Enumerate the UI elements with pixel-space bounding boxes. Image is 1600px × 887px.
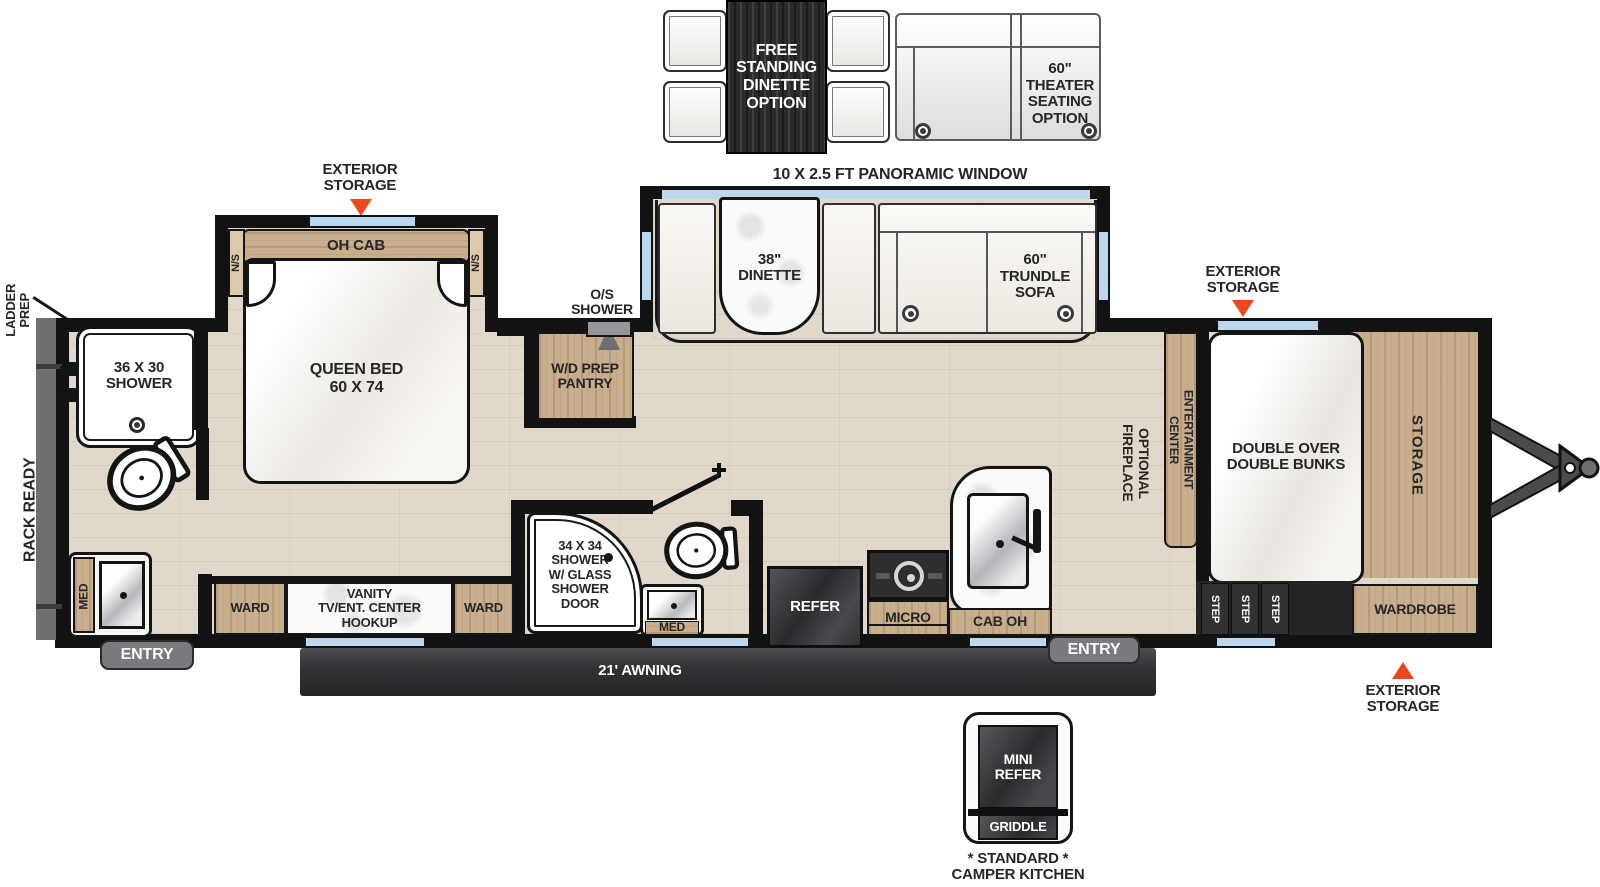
exterior-storage-label: EXTERIOR STORAGE (1338, 682, 1468, 716)
interior-wall (196, 428, 209, 500)
cab-oh-label: CAB OH (950, 610, 1050, 634)
step-label: STEP (1209, 595, 1221, 623)
camper-kitchen-caption: * STANDARD * CAMPER KITCHEN (938, 850, 1098, 884)
interior-wall (194, 318, 208, 430)
dinette-bench (822, 203, 876, 334)
shower-door-knob-icon (604, 553, 613, 562)
shower-valve-stem (60, 366, 68, 371)
dinette-option-chair (826, 81, 890, 143)
floorplan-canvas: FREE STANDING DINETTE OPTION 60" THEATER… (0, 0, 1600, 887)
entertainment-center: ENTERTAINMENT CENTER (1164, 332, 1198, 548)
dinette-option-chair (826, 10, 890, 72)
cooktop (867, 550, 949, 600)
ward-label: WARD (216, 584, 284, 633)
optional-fireplace-wrap: OPTIONAL FIREPLACE (1108, 392, 1164, 534)
step-label: STEP (1239, 595, 1251, 623)
theater-console (1010, 15, 1022, 141)
front-sink (99, 561, 145, 629)
step: STEP (1261, 583, 1289, 635)
exterior-storage-label: EXTERIOR STORAGE (295, 160, 425, 196)
panoramic-window-label: 10 X 2.5 FT PANORAMIC WINDOW (710, 166, 1090, 184)
ward-label: WARD (455, 584, 512, 633)
mid-med-cabinet: MED (640, 584, 704, 636)
wardrobe-cabinet: WARD (214, 582, 286, 635)
dinette-option-label: FREE STANDING DINETTE OPTION (728, 2, 825, 152)
refrigerator: REFER (767, 566, 863, 648)
wardrobe: WARDROBE (1352, 584, 1478, 635)
window (1099, 232, 1108, 300)
wardrobe-label: WARDROBE (1354, 586, 1476, 633)
burner-icon (894, 561, 924, 591)
dinette-bench (658, 203, 716, 334)
storage-label: STORAGE (1408, 415, 1425, 496)
sofa-armrest-line (896, 231, 898, 332)
dinette-option-chair (663, 10, 727, 72)
dinette-label: 38" DINETTE (722, 246, 817, 290)
awning-label: 21' AWNING (555, 660, 725, 682)
front-med-wood: MED (73, 557, 95, 633)
window (310, 217, 415, 226)
shower-valve-stem (60, 392, 68, 397)
mid-shower-label: 34 X 34 SHOWER W/ GLASS SHOWER DOOR (534, 527, 626, 623)
wd-prep-pantry: W/D PREP PANTRY (537, 332, 634, 420)
awning: 21' AWNING (300, 648, 1156, 696)
exterior-storage-arrow-icon (350, 199, 372, 216)
kitchen-lower-cabinet (867, 624, 949, 636)
front-shower-label: 36 X 30 SHOWER (87, 351, 191, 401)
vanity: VANITY TV/ENT. CENTER HOOKUP (286, 582, 453, 635)
exterior-storage-arrow-icon (1392, 662, 1414, 679)
wd-prep-pantry-label: W/D PREP PANTRY (535, 356, 635, 396)
front-med-cabinet: MED (68, 552, 152, 638)
hitch-icon (1490, 400, 1600, 536)
interior-wall (198, 574, 212, 648)
entry-label: ENTRY (1050, 638, 1138, 662)
rack-ready-text: RACK READY (21, 458, 39, 563)
bunks-label: DOUBLE OVER DOUBLE BUNKS (1211, 437, 1361, 477)
mid-med-label: MED (643, 620, 701, 636)
cab-oh: CAB OH (948, 608, 1052, 636)
griddle: GRIDDLE (978, 814, 1058, 840)
burner-grate (928, 573, 942, 579)
mid-sink (647, 590, 697, 620)
entry-label: ENTRY (102, 642, 192, 668)
burner-grate (876, 573, 890, 579)
kitchen-counter (950, 466, 1052, 614)
queen-bed-label: QUEEN BED 60 X 74 (246, 357, 467, 401)
exterior-storage-label: EXTERIOR STORAGE (1178, 262, 1308, 298)
mid-shower: 34 X 34 SHOWER W/ GLASS SHOWER DOOR (527, 512, 643, 634)
exterior-storage-arrow-icon (1232, 300, 1254, 317)
window (652, 638, 748, 646)
sink-drain (996, 540, 1004, 548)
vanity-label: VANITY TV/ENT. CENTER HOOKUP (288, 584, 451, 633)
window (306, 638, 424, 646)
storage-cabinet: STORAGE (1356, 332, 1478, 578)
rack-ready-notch (36, 364, 62, 369)
theater-seating-option: 60" THEATER SEATING OPTION (895, 13, 1101, 141)
os-shower-fixture (586, 320, 632, 337)
sofa-rivet-icon (902, 305, 919, 322)
optional-fireplace-label: OPTIONAL FIREPLACE (1120, 424, 1152, 502)
interior-wall (497, 322, 539, 336)
bunk-bed: DOUBLE OVER DOUBLE BUNKS (1208, 332, 1364, 584)
cupholder-icon (1081, 123, 1097, 139)
mini-refer-label: MINI REFER (980, 727, 1056, 807)
cupholder-icon (915, 123, 931, 139)
dinette-option-table: FREE STANDING DINETTE OPTION (726, 0, 827, 154)
dinette-option-chair (663, 81, 727, 143)
window (1218, 321, 1318, 330)
ns-label: N/S (230, 254, 242, 272)
mini-refer: MINI REFER (978, 725, 1058, 809)
storage-label-wrap: STORAGE (1386, 332, 1446, 578)
camper-kitchen-box: MINI REFER GRIDDLE (963, 712, 1073, 844)
ns-label: N/S (470, 254, 482, 272)
trundle-sofa: 60" TRUNDLE SOFA (878, 203, 1097, 334)
wardrobe-cabinet: WARD (453, 582, 514, 635)
mid-sink-drain (671, 603, 677, 609)
step: STEP (1231, 583, 1259, 635)
queen-bed: QUEEN BED 60 X 74 (243, 258, 470, 484)
os-shower-label: O/S SHOWER (552, 286, 652, 318)
refer-label: REFER (770, 569, 860, 645)
entertainment-center-wrap: ENTERTAINMENT CENTER (1166, 334, 1196, 546)
entertainment-center-label: ENTERTAINMENT CENTER (1167, 390, 1196, 489)
step: STEP (1201, 583, 1229, 635)
sofa-rivet-icon (1057, 305, 1074, 322)
step-label: STEP (1269, 595, 1281, 623)
ladder-prep-text: LADDER PREP (4, 284, 33, 337)
dinette-table: 38" DINETTE (719, 197, 820, 335)
front-sink-drain (120, 592, 127, 599)
toilet-icon (653, 509, 752, 591)
griddle-label: GRIDDLE (980, 816, 1056, 838)
entry-door: ENTRY (100, 640, 194, 670)
door-hinge-icon (717, 463, 721, 477)
front-med-label: MED (77, 584, 90, 610)
theater-armrest-line (913, 46, 915, 141)
window (1217, 638, 1275, 646)
window (970, 638, 1046, 646)
entry-door: ENTRY (1048, 636, 1140, 664)
